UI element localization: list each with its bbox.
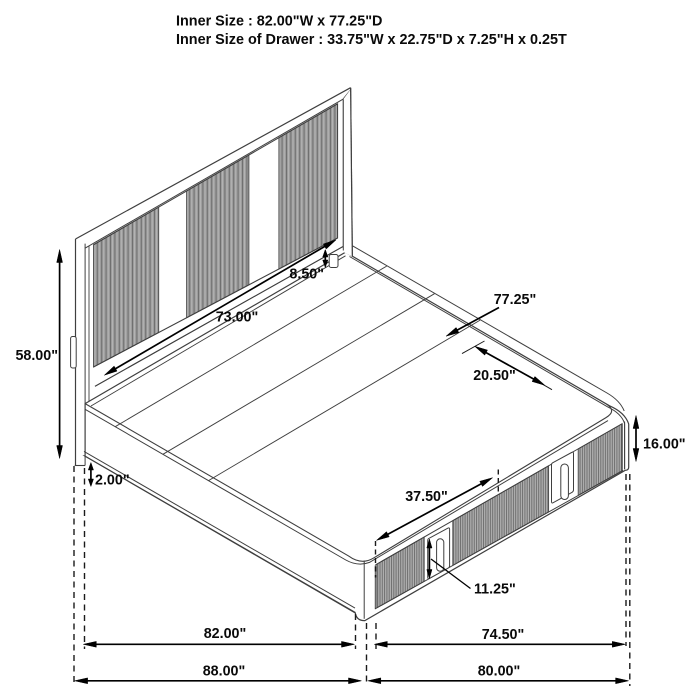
svg-text:58.00": 58.00" bbox=[15, 348, 58, 364]
svg-text:88.00": 88.00" bbox=[203, 664, 246, 680]
svg-text:80.00": 80.00" bbox=[478, 664, 521, 680]
svg-text:8.50": 8.50" bbox=[289, 267, 324, 283]
svg-text:74.50": 74.50" bbox=[482, 627, 525, 643]
svg-text:11.25": 11.25" bbox=[474, 582, 516, 598]
svg-text:82.00": 82.00" bbox=[204, 626, 247, 642]
svg-text:37.50": 37.50" bbox=[405, 489, 448, 505]
svg-text:Inner Size of Drawer : 33.75"W: Inner Size of Drawer : 33.75"W x 22.75"D… bbox=[176, 32, 567, 48]
svg-text:77.25": 77.25" bbox=[494, 292, 537, 308]
svg-text:16.00": 16.00" bbox=[643, 437, 686, 453]
svg-text:2.00": 2.00" bbox=[95, 473, 130, 489]
svg-text:Inner Size : 82.00"W x 77.25"D: Inner Size : 82.00"W x 77.25"D bbox=[176, 14, 382, 30]
svg-text:73.00": 73.00" bbox=[216, 310, 259, 326]
svg-text:20.50": 20.50" bbox=[473, 368, 516, 384]
